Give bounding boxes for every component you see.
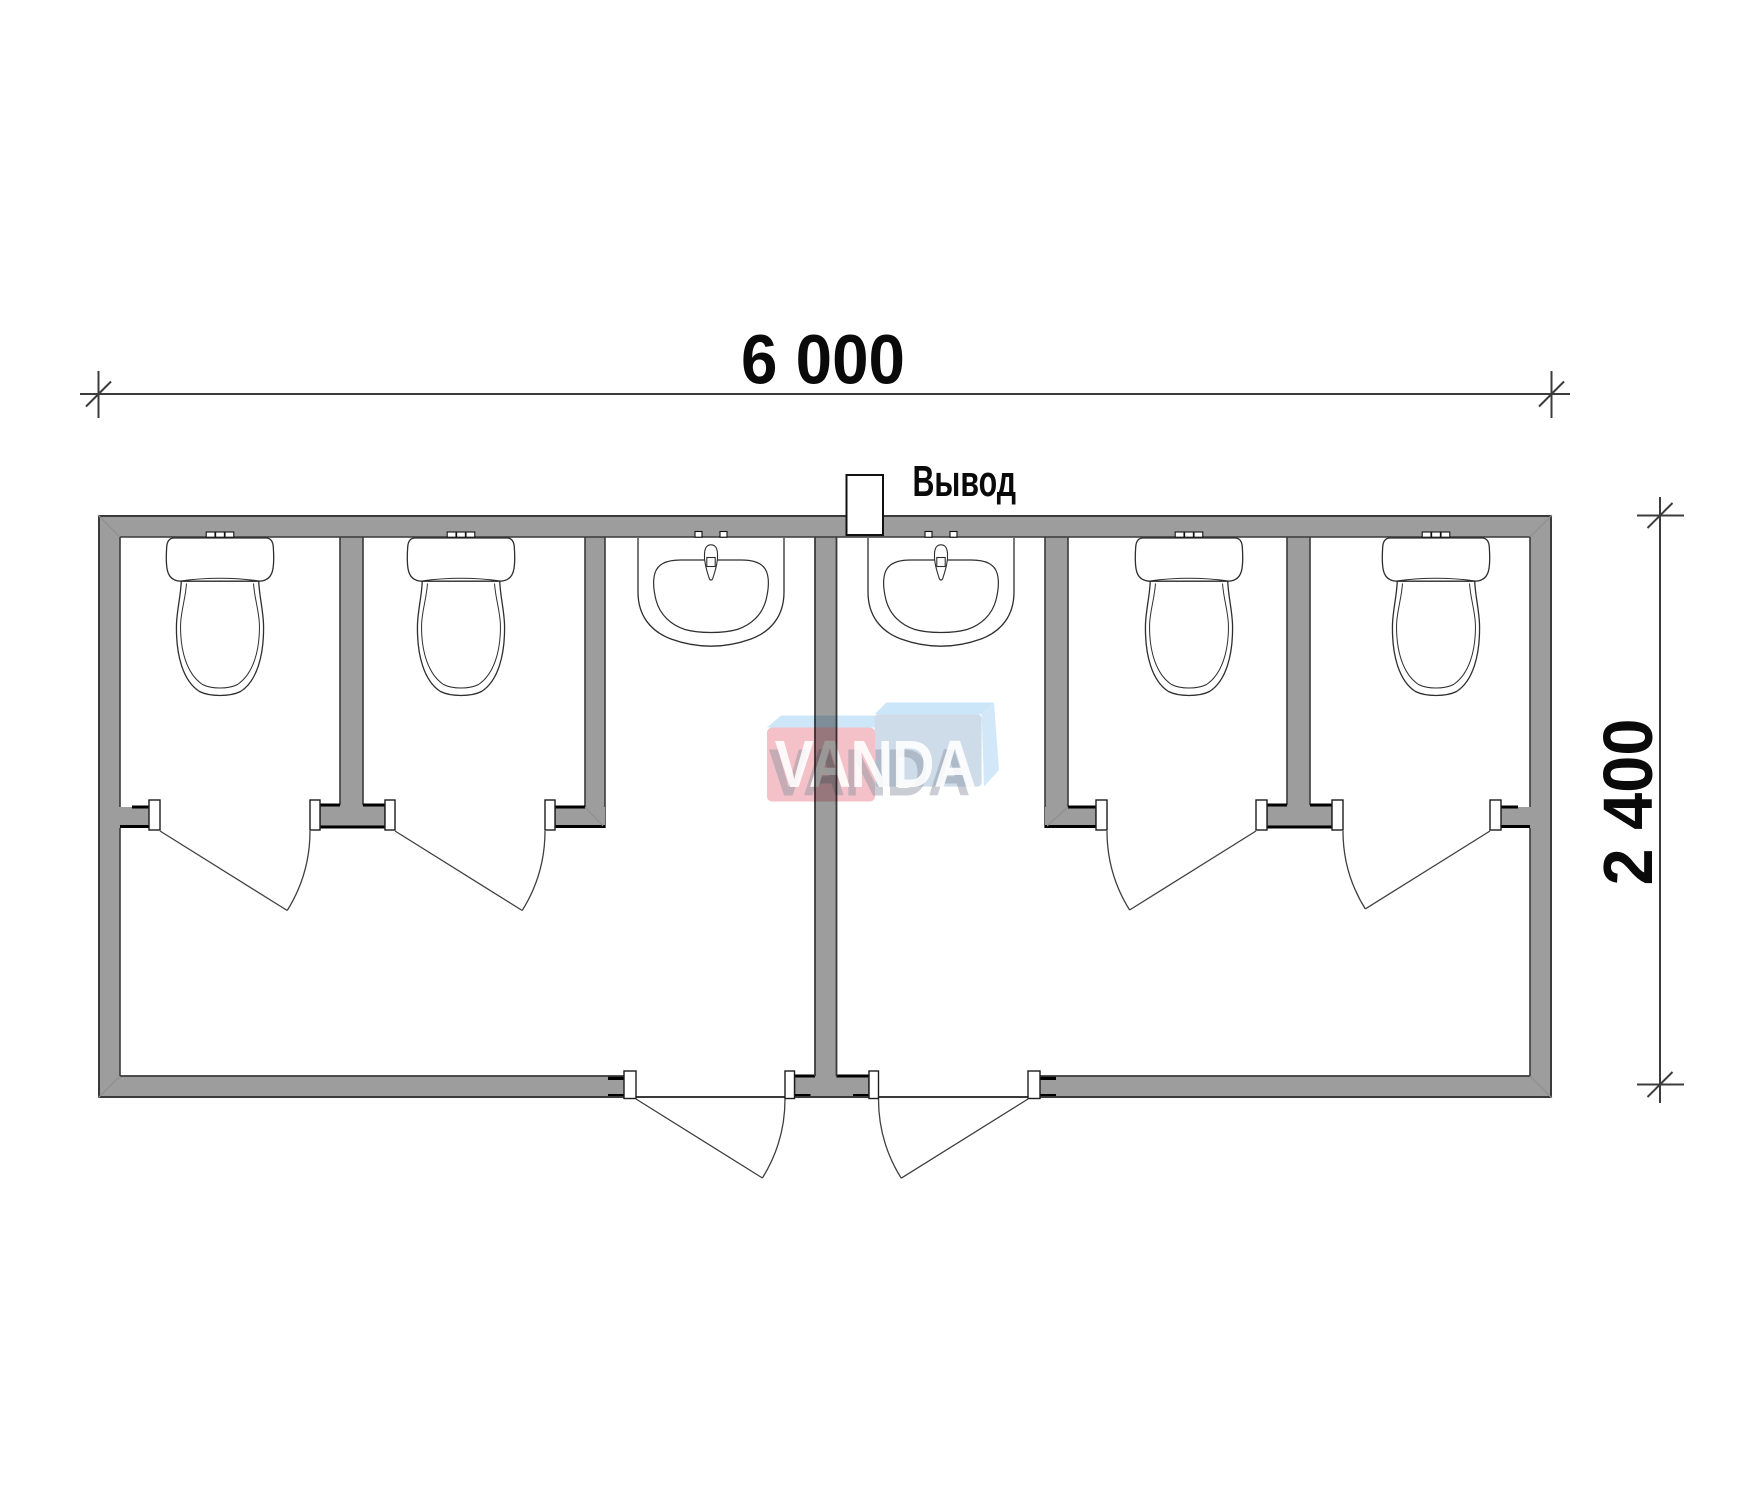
svg-text:VANDA: VANDA [775,728,976,802]
svg-text:6 000: 6 000 [741,321,905,399]
svg-text:2 400: 2 400 [1589,719,1667,886]
svg-text:Вывод: Вывод [913,457,1017,506]
